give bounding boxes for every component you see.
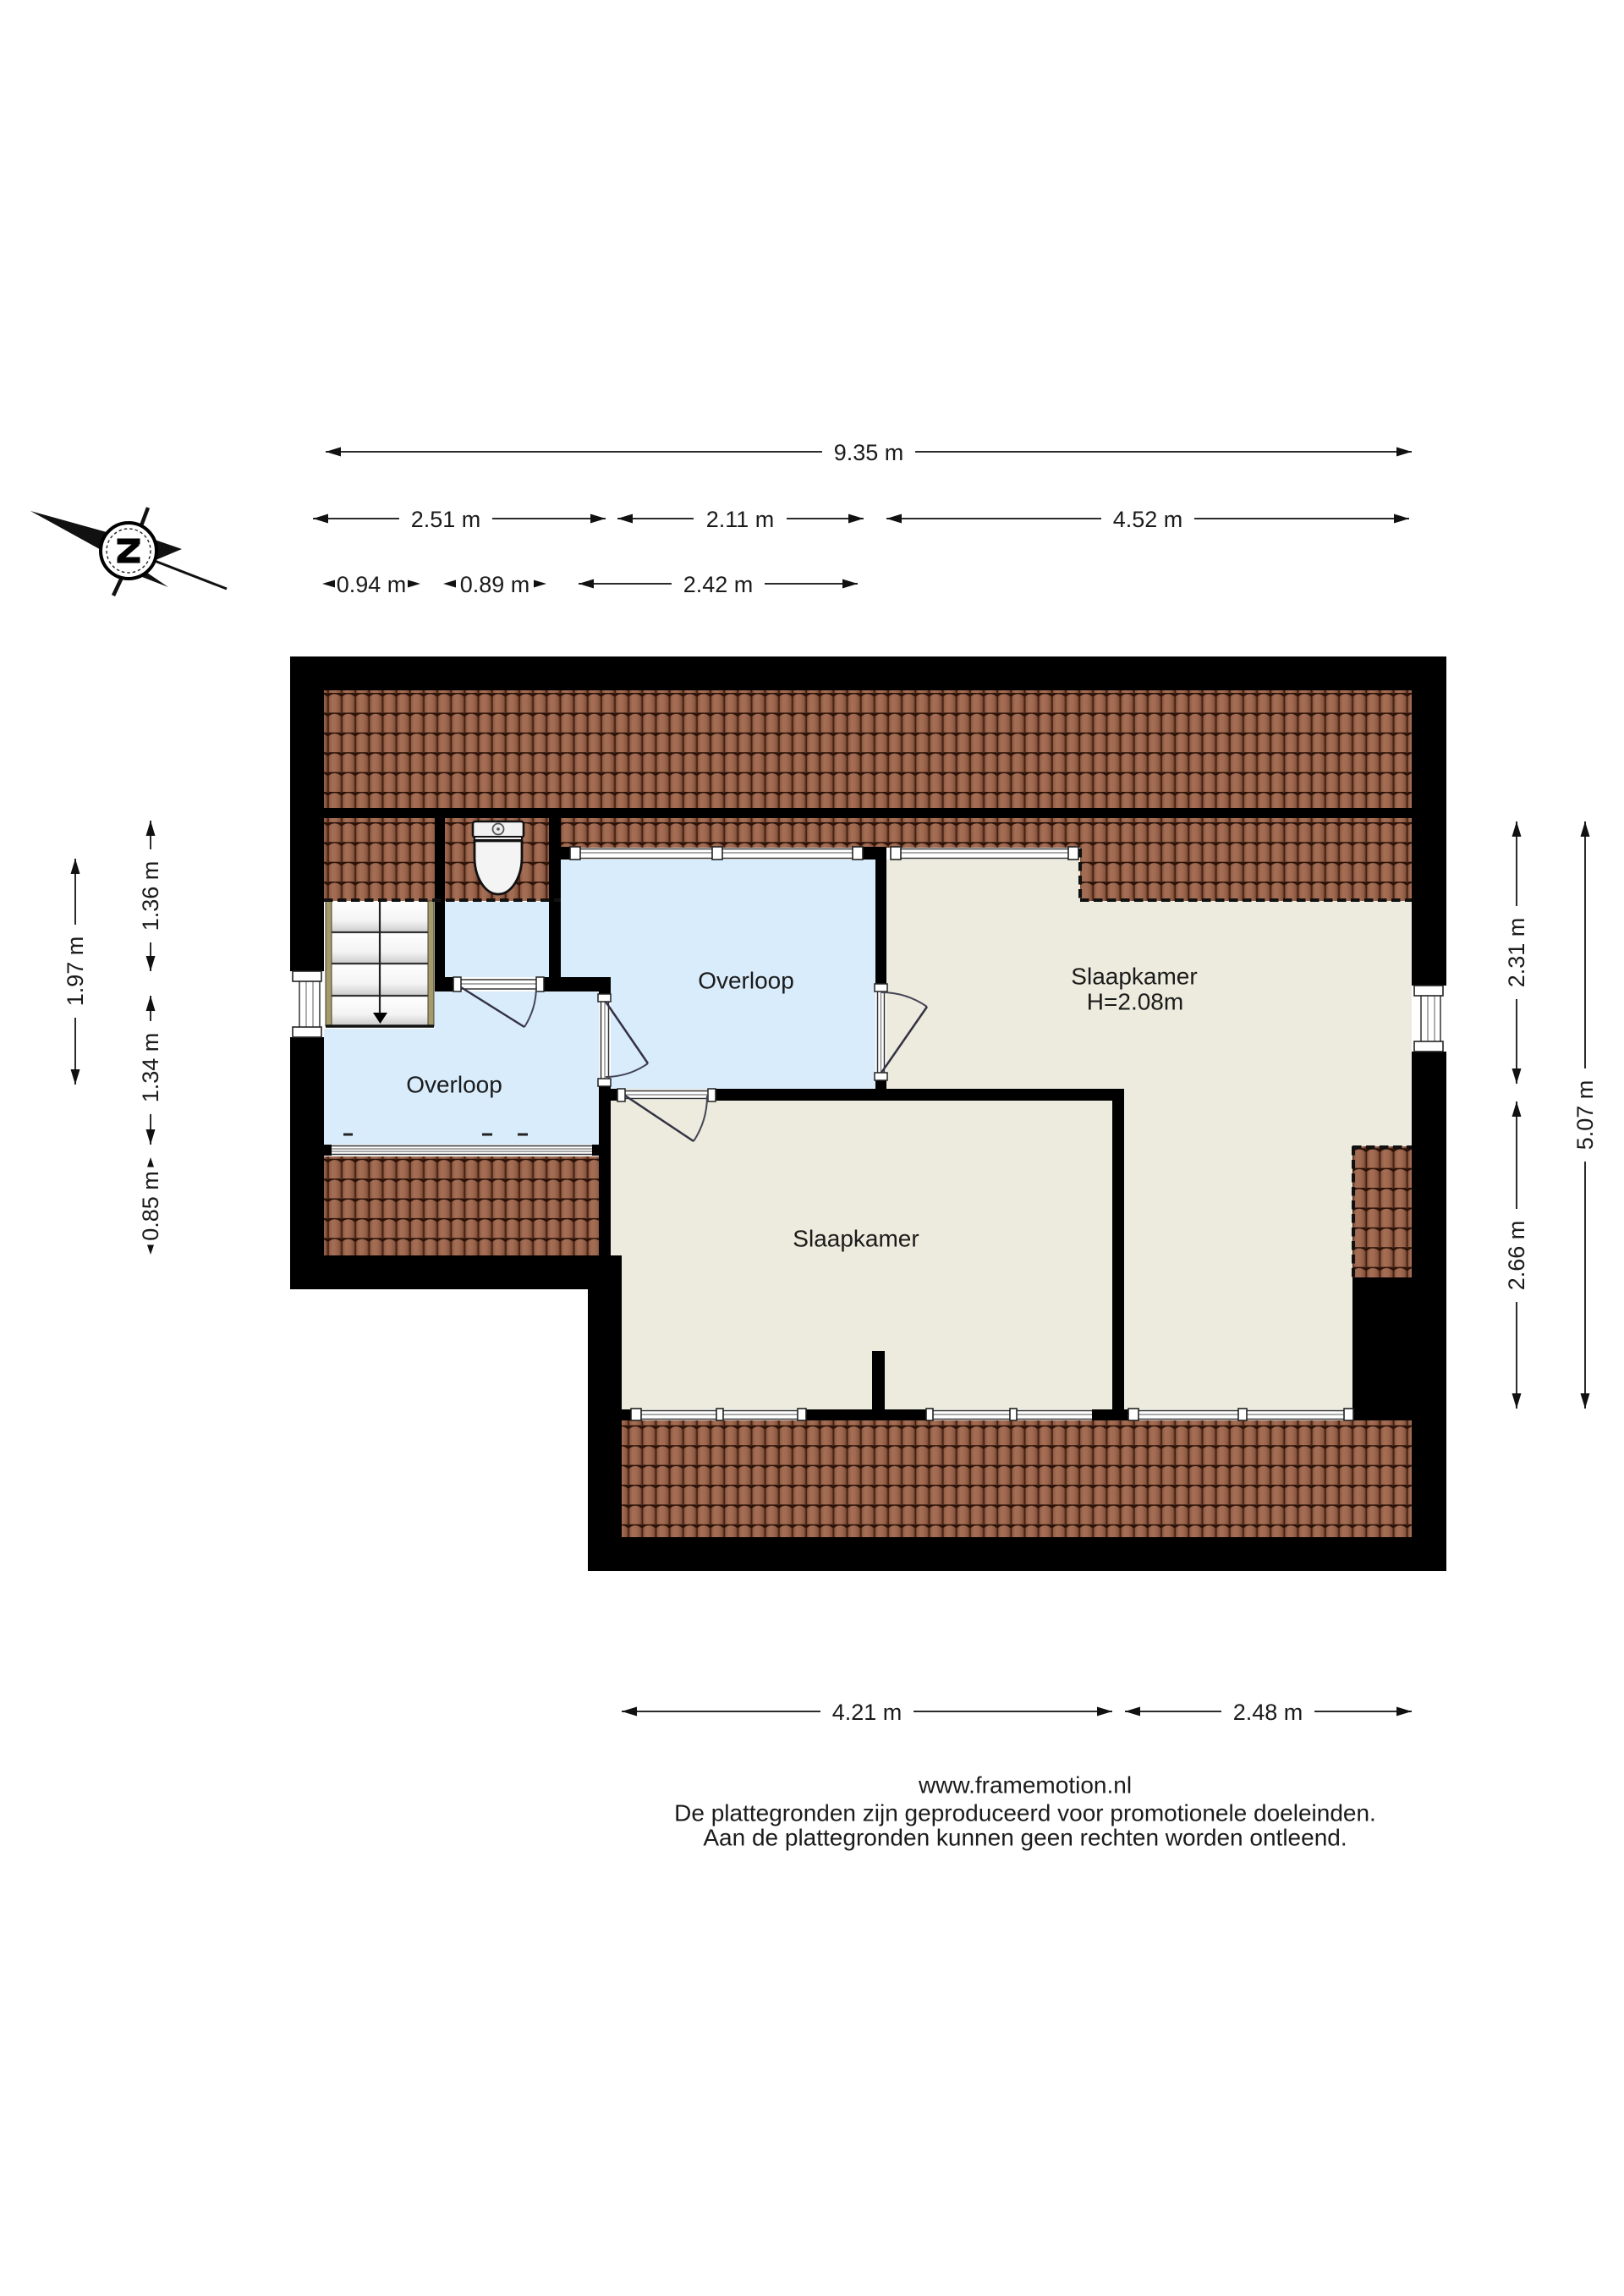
svg-text:2.51 m: 2.51 m (411, 507, 481, 532)
svg-text:5.07 m: 5.07 m (1572, 1080, 1598, 1151)
svg-text:9.35 m: 9.35 m (834, 440, 904, 465)
svg-text:1.97 m: 1.97 m (63, 937, 88, 1007)
svg-text:4.52 m: 4.52 m (1113, 507, 1183, 532)
svg-text:2.31 m: 2.31 m (1504, 918, 1529, 988)
svg-text:Overloop: Overloop (698, 968, 794, 994)
svg-text:2.48 m: 2.48 m (1233, 1700, 1303, 1725)
svg-text:Overloop: Overloop (406, 1072, 502, 1098)
svg-text:0.89 m: 0.89 m (460, 572, 530, 597)
svg-text:2.42 m: 2.42 m (683, 572, 754, 597)
svg-text:Slaapkamer: Slaapkamer (793, 1226, 919, 1252)
svg-text:1.34 m: 1.34 m (138, 1033, 163, 1103)
svg-text:De plattegronden zijn geproduc: De plattegronden zijn geproduceerd voor … (674, 1800, 1376, 1826)
svg-text:2.11 m: 2.11 m (706, 507, 775, 532)
svg-text:0.85 m: 0.85 m (138, 1171, 163, 1241)
svg-text:Slaapkamer: Slaapkamer (1071, 964, 1197, 990)
svg-text:0.94 m: 0.94 m (337, 572, 407, 597)
svg-text:2.66 m: 2.66 m (1504, 1221, 1529, 1291)
svg-text:www.framemotion.nl: www.framemotion.nl (918, 1772, 1132, 1799)
svg-text:1.36 m: 1.36 m (138, 861, 163, 931)
svg-text:H=2.08m: H=2.08m (1087, 989, 1183, 1015)
svg-text:4.21 m: 4.21 m (832, 1700, 903, 1725)
svg-text:Aan de plattegronden kunnen ge: Aan de plattegronden kunnen geen rechten… (703, 1825, 1347, 1851)
